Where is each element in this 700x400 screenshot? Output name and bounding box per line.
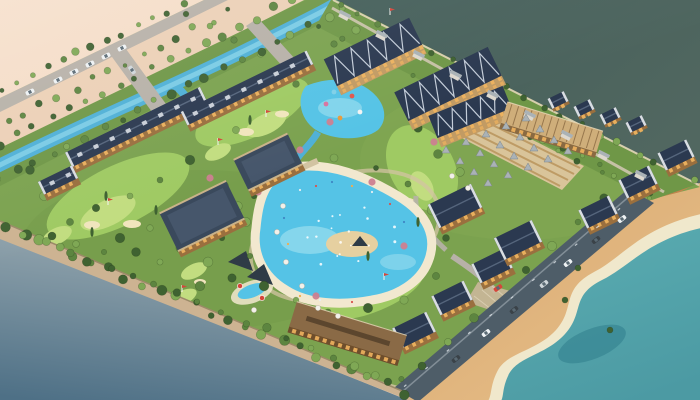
resort-master-plan-render: Aerial 3D render — lakeside golf and wat… xyxy=(0,0,700,400)
render-canvas: Aerial 3D render — lakeside golf and wat… xyxy=(0,0,700,400)
light-overlay xyxy=(0,0,700,400)
